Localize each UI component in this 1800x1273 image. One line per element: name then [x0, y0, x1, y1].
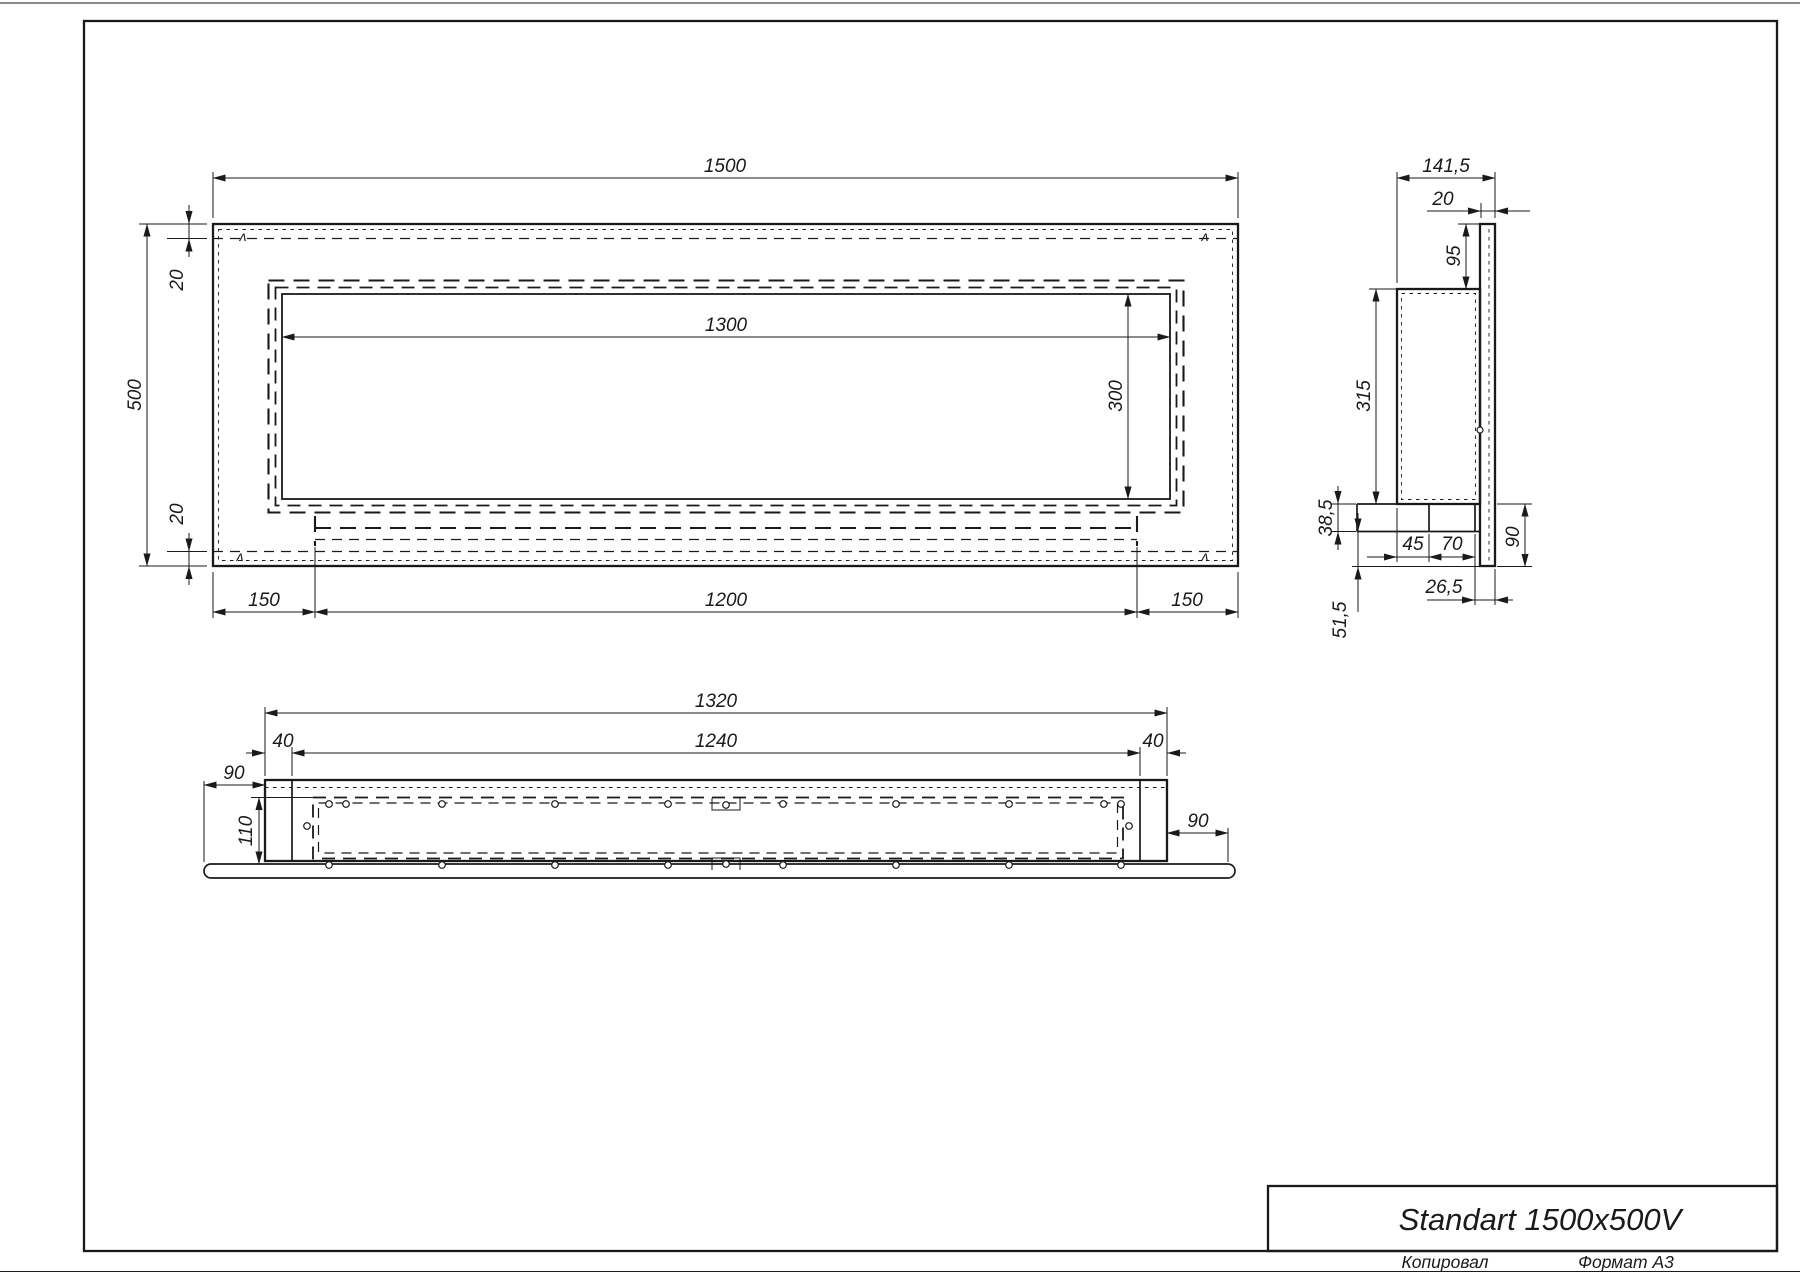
dim-front-overall-width: 1500: [704, 156, 747, 177]
dim-side-overall-depth: 141,5: [1422, 156, 1470, 177]
dim-side-burner-offset: 45: [1402, 534, 1424, 555]
side-hole: [1477, 427, 1483, 433]
dim-front-tray-width: 1200: [705, 590, 748, 611]
section-mark: ʌ: [1201, 548, 1209, 564]
sheet-edges: [0, 3, 1800, 1272]
dim-front-opening-height: 300: [1106, 380, 1127, 412]
bottom-opening-hidden: [313, 798, 1123, 859]
dim-front-bottom-offset: 20: [167, 503, 188, 526]
dim-side-tray-height: 38,5: [1316, 499, 1337, 536]
section-mark: ʌ: [236, 548, 244, 564]
dim-side-bottom-inset: 51,5: [1330, 601, 1351, 638]
section-mark: ʌ: [239, 228, 247, 244]
side-body: [1397, 289, 1480, 504]
dim-side-flange-gap: 20: [1431, 189, 1454, 210]
bottom-flange-bar: [204, 864, 1235, 878]
dim-front-right-margin: 150: [1171, 590, 1203, 611]
dim-bottom-inner-length: 1240: [695, 731, 738, 752]
dim-side-top-inset: 95: [1444, 245, 1465, 267]
dim-bottom-right-flange: 90: [1187, 811, 1209, 832]
dim-front-left-margin: 150: [248, 590, 280, 611]
dim-front-opening-width: 1300: [705, 315, 748, 336]
front-outer-rect: [213, 224, 1238, 566]
title-block-title: Standart 1500x500V: [1399, 1202, 1685, 1237]
dim-bottom-depth: 110: [236, 815, 257, 846]
dim-bottom-left-wall: 40: [272, 731, 294, 752]
dim-front-top-offset: 20: [167, 269, 188, 292]
section-mark: ʌ: [1201, 228, 1209, 244]
drawing-frame: [84, 21, 1777, 1251]
dim-side-burner-width: 70: [1441, 534, 1463, 555]
front-inner-fine-dash: [219, 230, 1233, 561]
dim-side-body-height: 315: [1354, 380, 1375, 412]
copied-label: Копировал: [1401, 1252, 1488, 1272]
dim-bottom-left-flange: 90: [223, 763, 245, 784]
dim-bottom-right-wall: 40: [1142, 731, 1164, 752]
dim-side-flange-depth: 26,5: [1425, 577, 1463, 598]
side-front-flange: [1480, 224, 1495, 566]
dim-front-overall-height: 500: [125, 379, 146, 411]
front-view: ʌ ʌ ʌ ʌ 1500 500 20 20 1300 300: [125, 156, 1238, 618]
side-view: 141,5 20 95 315 38,5 45 70 90: [1316, 156, 1532, 638]
bottom-outer-rect: [265, 780, 1167, 861]
drawing-canvas: ʌ ʌ ʌ ʌ 1500 500 20 20 1300 300: [0, 0, 1800, 1273]
format-label: Формат А3: [1578, 1252, 1674, 1272]
bottom-view: 1320 1240 40 40 90 90 110: [204, 691, 1235, 878]
title-block: Standart 1500x500V Копировал Формат А3: [1268, 1186, 1777, 1272]
dim-bottom-outer-length: 1320: [695, 691, 738, 712]
dim-side-lower-height: 90: [1503, 526, 1524, 548]
